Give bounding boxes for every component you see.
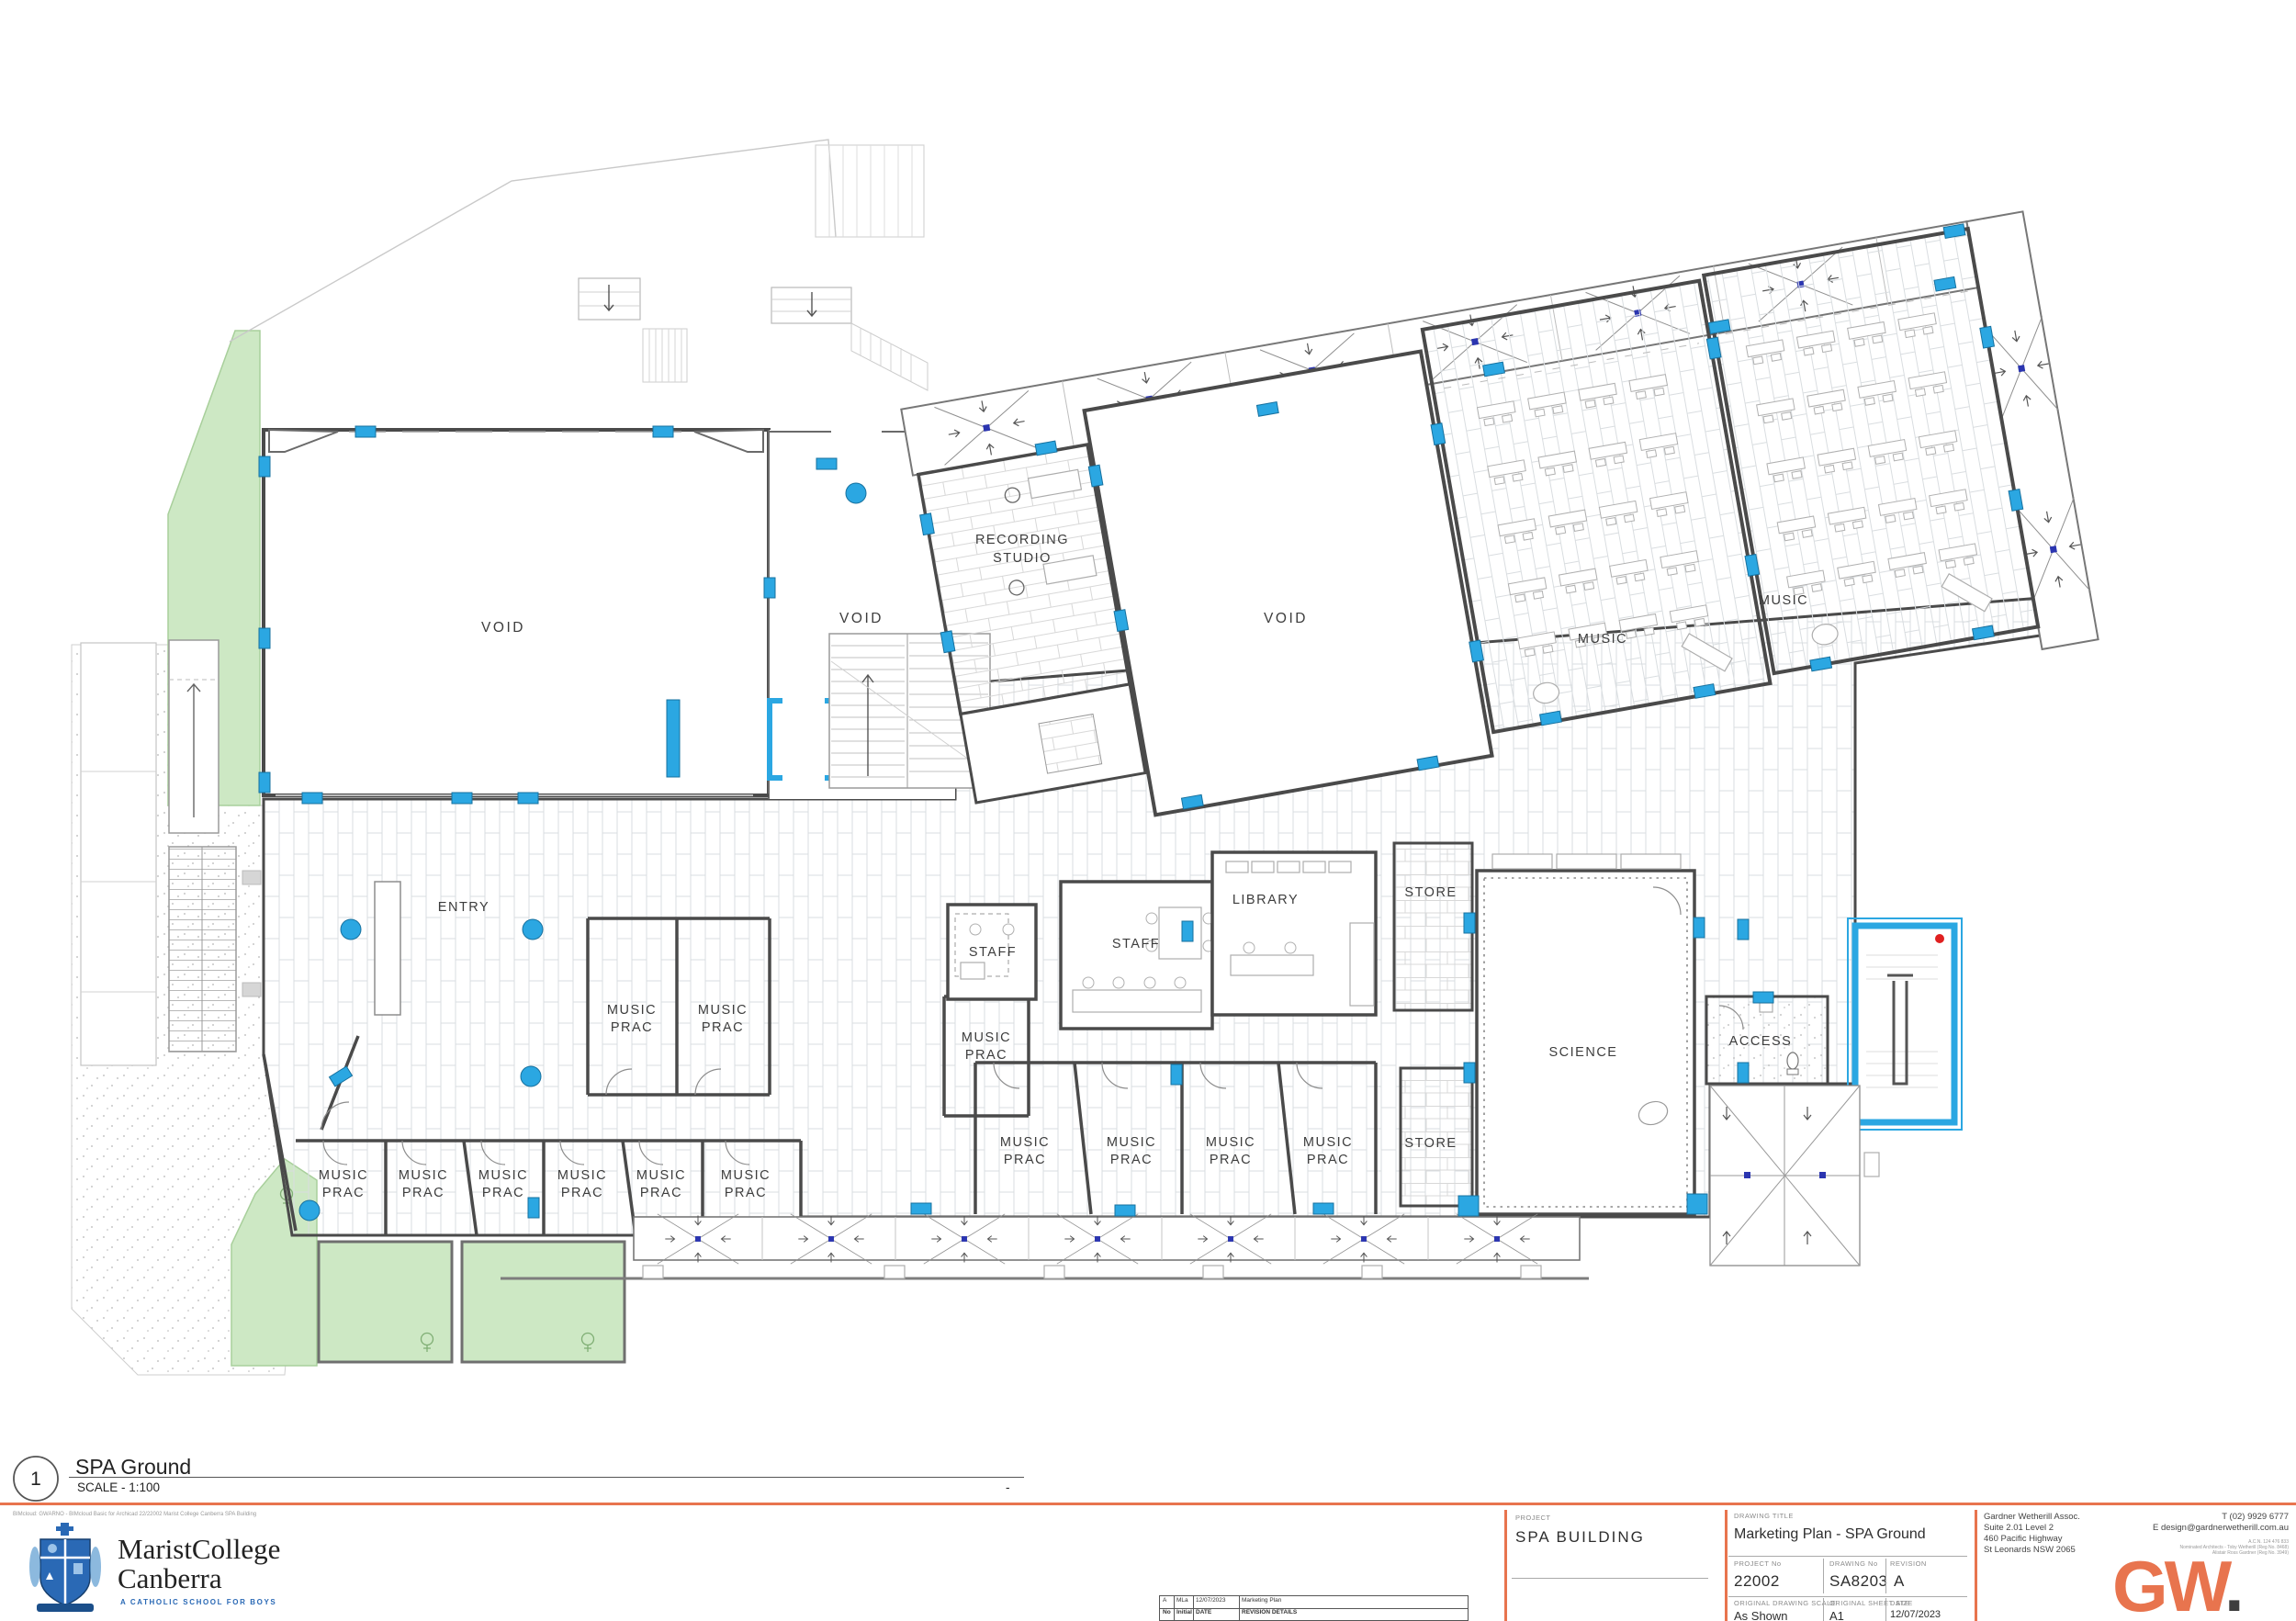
drawing-ref-bubble: 1 <box>6 1453 70 1504</box>
firm-contact: T (02) 9929 6777 E design@gardnerwetheri… <box>2153 1512 2289 1534</box>
room-store-upper <box>1394 843 1472 1010</box>
door-marker-icon <box>846 483 866 503</box>
door-marker-icon <box>341 919 361 940</box>
label-staff-large <box>1112 937 1160 951</box>
door-marker-icon <box>521 1066 541 1086</box>
rev-date: 12/07/2023 <box>1196 1597 1226 1604</box>
view-name: SPA Ground <box>75 1455 191 1480</box>
diamond-paving <box>1710 1086 1879 1266</box>
courtyard-1 <box>319 1242 452 1362</box>
external-ramp <box>169 640 219 833</box>
courtyard-2 <box>462 1242 625 1362</box>
gw-logo: GW. <box>2112 1554 2241 1618</box>
roof-landing-2 <box>771 287 928 390</box>
project-name: SPA BUILDING <box>1515 1528 1645 1547</box>
door-marker-icon <box>299 1200 320 1221</box>
label-music-2 <box>1759 593 1808 608</box>
svg-text:1: 1 <box>30 1469 41 1490</box>
stair-highlighted <box>1848 918 1962 1130</box>
divider <box>1504 1510 1507 1621</box>
revision-table: A MLa 12/07/2023 Marketing Plan No Initi… <box>1159 1595 1469 1621</box>
label-studio: STUDIO <box>993 551 1052 566</box>
college-name-1: MaristCollege <box>118 1536 280 1563</box>
label-void-west <box>481 620 525 636</box>
ref-underline <box>69 1477 1024 1478</box>
college-name-2: Canberra <box>118 1565 222 1593</box>
original-scale: As Shown <box>1734 1609 1788 1621</box>
label-recording: RECORDING <box>975 533 1069 547</box>
label-library: LIBRARY <box>1232 893 1299 907</box>
project-label: PROJECT <box>1515 1514 1551 1522</box>
drawing-sheet: MUSIC PRAC VOID STORE STAFF MUSIC <box>0 0 2296 1621</box>
college-crest <box>28 1521 106 1613</box>
view-scale: SCALE - 1:100 <box>77 1480 160 1494</box>
hydrant-icon <box>1935 934 1944 943</box>
sheet-size: A1 <box>1829 1609 1844 1621</box>
lift <box>770 701 838 778</box>
toilet-icon <box>1787 1053 1798 1069</box>
label-void-middle <box>839 611 884 626</box>
sheet-divider <box>0 1503 2296 1505</box>
drawing-title-label: DRAWING TITLE <box>1734 1512 1794 1520</box>
label-science: SCIENCE <box>1549 1045 1618 1060</box>
label-access: ACCESS <box>1729 1034 1793 1049</box>
south-canopy <box>501 1214 1589 1278</box>
drawing-title: Marketing Plan - SPA Ground <box>1734 1526 1926 1543</box>
ref-dash: - <box>1006 1480 1010 1494</box>
project-no: 22002 <box>1734 1572 1780 1591</box>
site-boundary <box>230 140 928 390</box>
label-music-1 <box>1578 632 1627 647</box>
right-section <box>1394 843 1962 1266</box>
roof-landing-1 <box>579 278 687 382</box>
rev-details: Marketing Plan <box>1242 1597 1281 1604</box>
label-staff-small <box>969 945 1017 960</box>
college-tagline: A CATHOLIC SCHOOL FOR BOYS <box>120 1598 276 1606</box>
room-void-central <box>1085 352 1492 816</box>
room-science <box>1477 854 1694 1214</box>
floor-plan: MUSIC PRAC VOID STORE STAFF MUSIC <box>0 0 2296 1451</box>
title-block: 1 SPA Ground SCALE - 1:100 - BIMcloud: G… <box>0 1451 2296 1621</box>
revision: A <box>1894 1572 1905 1591</box>
reception-counter <box>375 882 400 1015</box>
divider <box>1725 1510 1728 1621</box>
label-store-lower <box>1404 1136 1457 1151</box>
drawing-no: SA8203 <box>1829 1572 1888 1591</box>
divider <box>1975 1510 1977 1621</box>
rev-no: A <box>1163 1597 1166 1604</box>
firm-address: Gardner Wetherill Assoc. Suite 2.01 Leve… <box>1984 1512 2080 1556</box>
label-void-central <box>1264 611 1308 626</box>
label-store-upper <box>1404 885 1457 900</box>
label-entry: ENTRY <box>438 900 490 915</box>
bim-note: BIMcloud: GWARNO - BIMcloud Basic for Ar… <box>13 1512 256 1517</box>
room-library <box>1212 852 1376 1015</box>
sheet-date: 12/07/2023 <box>1890 1609 1941 1620</box>
door-marker-icon <box>523 919 543 940</box>
window-highlight-icon <box>667 700 680 777</box>
room-void-west <box>264 430 769 795</box>
rev-initial: MLa <box>1176 1597 1188 1604</box>
